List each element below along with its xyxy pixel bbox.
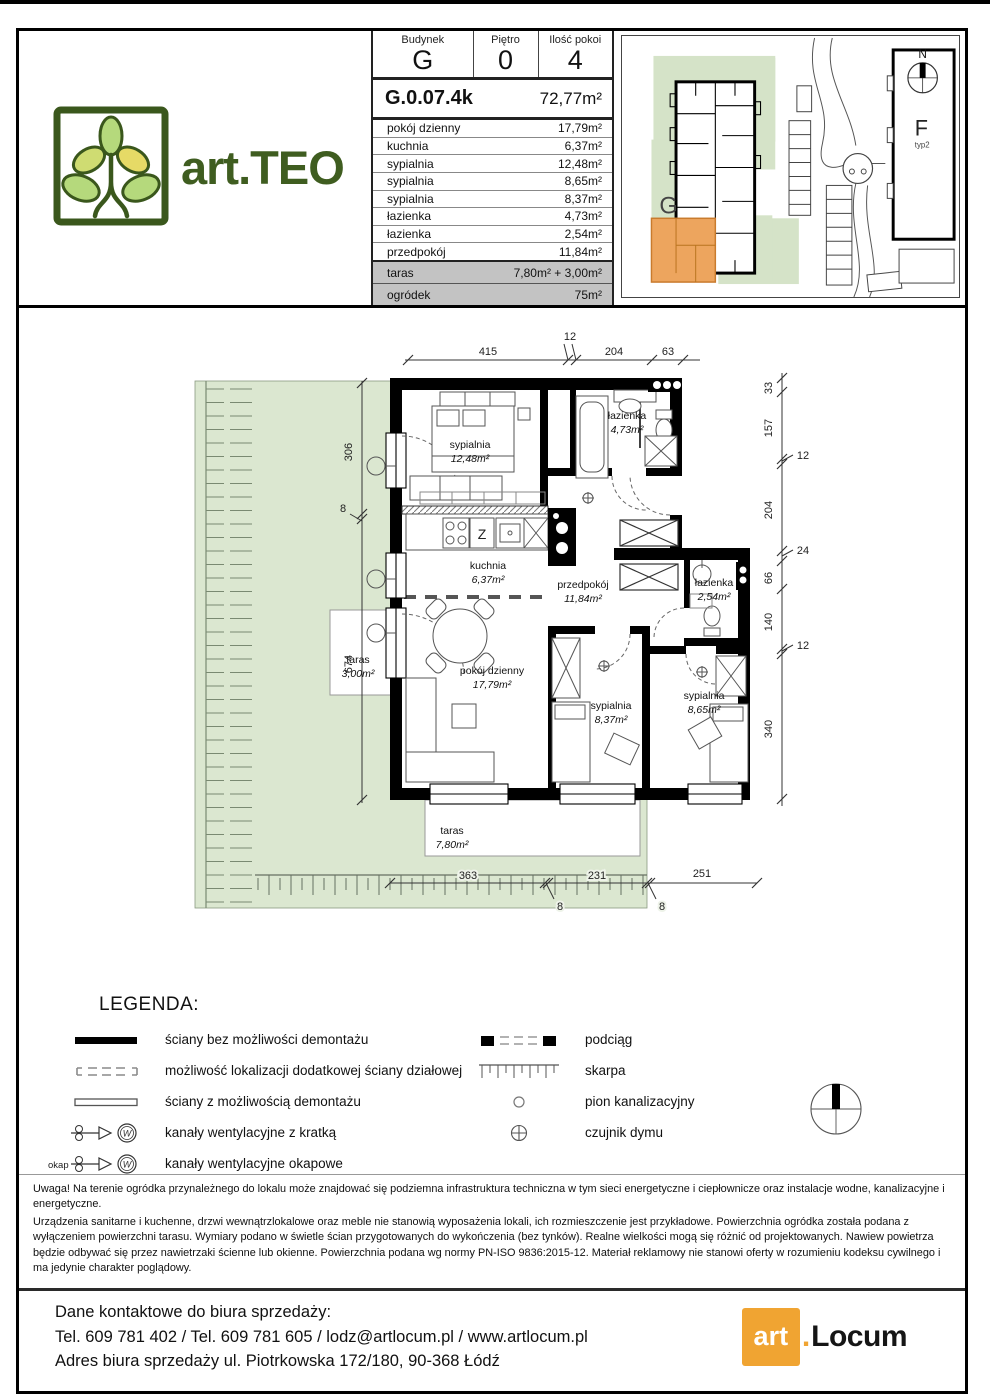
dim-right — [777, 373, 793, 806]
building-value: G — [412, 46, 433, 74]
vent-letter: W — [123, 1159, 133, 1169]
terrace-label: taras — [387, 266, 414, 280]
okap-label: okap — [48, 1160, 69, 1171]
solid-wall-icon — [47, 1029, 165, 1051]
room-area: 6,37m² — [472, 574, 505, 586]
dim-label: 24 — [797, 545, 809, 557]
legend-item: ściany bez możliwości demontażu — [47, 1024, 467, 1055]
dim-label: 674 — [343, 655, 355, 673]
room-area-rows: pokój dzienny17,79m² kuchnia6,37m² sypia… — [373, 120, 612, 262]
dim-label: 66 — [763, 572, 775, 584]
skarpa-left-hatch — [206, 381, 252, 908]
legend: LEGENDA: ściany bez możliwości demontażu — [19, 984, 965, 1174]
row-value: 6,37m² — [565, 139, 602, 153]
room-area: 8,65m² — [688, 704, 721, 716]
legend-left-column: ściany bez możliwości demontażu możliwoś… — [47, 1024, 467, 1179]
table-row: przedpokój11,84m² — [373, 243, 612, 262]
disclaimer-paragraph: Urządzenia sanitarne i kuchenne, drzwi w… — [33, 1215, 951, 1277]
page-frame: art.TEO Budynek G Piętro 0 Ilość pokoi 4 — [16, 28, 968, 1394]
dim-label: 12 — [564, 331, 576, 343]
rooms-count-value: 4 — [568, 46, 583, 74]
dim-top — [403, 344, 700, 365]
table-row: pokój dzienny17,79m² — [373, 120, 612, 138]
vent-shaft-top — [648, 378, 682, 392]
dim-label: 415 — [479, 346, 497, 358]
plan-north-compass-icon — [807, 1076, 865, 1143]
art-locum-logo-box: art — [742, 1308, 800, 1366]
slope-icon — [467, 1059, 585, 1083]
north-label: N — [918, 47, 927, 61]
optional-wall-icon — [47, 1060, 165, 1082]
row-label: pokój dzienny — [387, 121, 460, 135]
floor-plan-drawing: Z — [19, 308, 965, 984]
legend-title: LEGENDA: — [99, 994, 965, 1016]
dim-label: 340 — [763, 720, 775, 738]
legend-item: ściany z możliwością demontażu — [47, 1086, 467, 1117]
unit-id: G.0.07.4k — [385, 87, 473, 110]
room-label: przedpokój — [557, 579, 608, 591]
table-row: łazienka4,73m² — [373, 208, 612, 226]
dim-label: 140 — [763, 613, 775, 631]
legend-item: czujnik dymu — [467, 1117, 797, 1148]
room-label: sypialnia — [450, 439, 491, 451]
demountable-wall — [402, 506, 548, 514]
row-value: 8,65m² — [565, 174, 602, 188]
row-value: 17,79m² — [558, 121, 602, 135]
legend-item: okap W kanały wentylacyjne okapowe — [47, 1148, 467, 1179]
sewage-riser-icon — [467, 1091, 585, 1113]
dim-label: 251 — [693, 868, 711, 880]
legend-label: kanały wentylacyjne okapowe — [165, 1156, 343, 1171]
row-label: sypialnia — [387, 174, 434, 188]
dim-label: 231 — [588, 870, 606, 882]
garden-row: ogródek 75m² — [373, 284, 612, 305]
unit-info-table: Budynek G Piętro 0 Ilość pokoi 4 G.0.07.… — [371, 31, 614, 305]
floor-cell: Piętro 0 — [473, 31, 538, 77]
room-label: łazienka — [695, 577, 734, 589]
legend-item: W kanały wentylacyjne z kratką — [47, 1117, 467, 1148]
dim-label: 63 — [662, 346, 674, 358]
unit-id-row: G.0.07.4k 72,77m² — [373, 80, 612, 120]
row-label: sypialnia — [387, 157, 434, 171]
legend-label: ściany bez możliwości demontażu — [165, 1032, 368, 1047]
disclaimer-paragraph: Uwaga! Na terenie ogródka przynależnego … — [33, 1182, 951, 1213]
logo-wordmark: art.TEO — [181, 141, 344, 194]
legend-label: skarpa — [585, 1063, 626, 1078]
footer: Dane kontaktowe do biura sprzedaży: Tel.… — [19, 1291, 965, 1391]
dim-label: 8 — [557, 901, 563, 913]
room-label: sypialnia — [684, 690, 725, 702]
room-area: 8,37m² — [595, 714, 628, 726]
legend-right-column: podciąg skarpa — [467, 1024, 797, 1179]
legend-item: możliwość lokalizacji dodatkowej ściany … — [47, 1055, 467, 1086]
room-label: łazienka — [608, 410, 647, 422]
logo-dot: . — [802, 1320, 810, 1354]
art-teo-logo-icon: art.TEO — [45, 98, 345, 238]
site-plan-map: G F typ2 N — [622, 36, 959, 297]
legend-label: pion kanalizacyjny — [585, 1094, 695, 1109]
kitchen-sink-symbol: Z — [478, 526, 487, 542]
table-row: sypialnia8,65m² — [373, 173, 612, 191]
room-area: 11,84m² — [564, 593, 602, 605]
site-parking — [789, 86, 902, 292]
smoke-detector-icon — [467, 1121, 585, 1145]
dim-label: 12 — [797, 640, 809, 652]
beam-icon — [467, 1029, 585, 1051]
room-label: pokój dzienny — [460, 665, 525, 677]
vent-hood-icon: okap W — [47, 1151, 165, 1177]
rooms-count-cell: Ilość pokoi 4 — [538, 31, 612, 77]
room-label: sypialnia — [591, 700, 632, 712]
row-label: łazienka — [387, 209, 431, 223]
logo-locum-text: Locum — [811, 1320, 907, 1354]
table-row: łazienka2,54m² — [373, 226, 612, 244]
table-row: sypialnia8,37m² — [373, 191, 612, 209]
site-roundabout — [843, 154, 872, 184]
dim-label: 363 — [459, 870, 477, 882]
row-value: 2,54m² — [565, 227, 602, 241]
bathroom2-vent — [736, 562, 750, 590]
vent-letter: W — [123, 1128, 133, 1138]
garden-value: 75m² — [575, 288, 602, 302]
legend-label: czujnik dymu — [585, 1125, 663, 1140]
site-plan: G F typ2 N — [621, 35, 960, 298]
vent-grille-icon: W — [47, 1120, 165, 1146]
row-value: 12,48m² — [558, 157, 602, 171]
row-value: 8,37m² — [565, 192, 602, 206]
building-f-label: F — [915, 115, 928, 140]
legend-label: możliwość lokalizacji dodatkowej ściany … — [165, 1063, 462, 1078]
table-row: sypialnia12,48m² — [373, 155, 612, 173]
row-value: 11,84m² — [559, 245, 602, 259]
floor-value: 0 — [498, 46, 513, 74]
room-area: 2,54m² — [697, 591, 731, 603]
building-f-sublabel: typ2 — [915, 141, 930, 150]
legend-item: podciąg — [467, 1024, 797, 1055]
dim-label: 12 — [797, 450, 809, 462]
room-area: 12,48m² — [451, 453, 490, 465]
legend-label: kanały wentylacyjne z kratką — [165, 1125, 336, 1140]
row-value: 4,73m² — [565, 209, 602, 223]
site-unit-highlight — [651, 218, 715, 282]
kitchen-vent-shaft — [548, 508, 576, 566]
legend-item: skarpa — [467, 1055, 797, 1086]
contact-heading: Dane kontaktowe do biura sprzedaży: — [55, 1300, 588, 1325]
room-label: kuchnia — [470, 560, 506, 572]
row-label: przedpokój — [387, 245, 446, 259]
room-area: 7,80m² — [436, 839, 469, 851]
contact-address: Adres biura sprzedaży ul. Piotrkowska 17… — [55, 1349, 588, 1374]
logo-art-text: art — [754, 1321, 789, 1352]
contact-block: Dane kontaktowe do biura sprzedaży: Tel.… — [55, 1300, 588, 1374]
contact-phones: Tel. 609 781 402 / Tel. 609 781 605 / lo… — [55, 1325, 588, 1350]
dim-label: 8 — [659, 901, 665, 913]
dim-label: 33 — [763, 382, 775, 394]
dim-label: 157 — [763, 419, 775, 437]
top-rule — [0, 0, 990, 4]
developer-logo: art.TEO — [19, 31, 371, 305]
header: art.TEO Budynek G Piętro 0 Ilość pokoi 4 — [19, 31, 965, 308]
terrace-value: 7,80m² + 3,00m² — [514, 266, 602, 280]
disclaimer: Uwaga! Na terenie ogródka przynależnego … — [19, 1174, 965, 1291]
unit-total-area: 72,77m² — [540, 89, 602, 109]
garden-label: ogródek — [387, 288, 430, 302]
legend-label: podciąg — [585, 1032, 632, 1047]
legend-item: pion kanalizacyjny — [467, 1086, 797, 1117]
dim-right-labels: 33 157 12 204 24 66 140 12 340 — [763, 382, 809, 738]
legend-label: ściany z możliwością demontażu — [165, 1094, 361, 1109]
floor-plan: Z — [19, 308, 965, 984]
building-cell: Budynek G — [373, 31, 473, 77]
table-row: kuchnia6,37m² — [373, 138, 612, 156]
unit-meta-row: Budynek G Piętro 0 Ilość pokoi 4 — [373, 31, 612, 80]
dim-label: 8 — [340, 503, 346, 515]
dim-label: 204 — [605, 346, 623, 358]
terrace-row: taras 7,80m² + 3,00m² — [373, 262, 612, 284]
room-area: 17,79m² — [473, 679, 512, 691]
row-label: sypialnia — [387, 192, 434, 206]
room-area: 4,73m² — [611, 424, 644, 436]
row-label: łazienka — [387, 227, 431, 241]
room-label: taras — [440, 825, 463, 837]
art-locum-logo: art . Locum — [742, 1308, 907, 1366]
dim-label: 204 — [763, 501, 775, 519]
row-label: kuchnia — [387, 139, 428, 153]
dim-label: 306 — [343, 443, 355, 461]
flyer-page: art.TEO Budynek G Piętro 0 Ilość pokoi 4 — [0, 0, 990, 1400]
removable-wall-icon — [47, 1091, 165, 1113]
building-g-label: G — [659, 193, 677, 219]
